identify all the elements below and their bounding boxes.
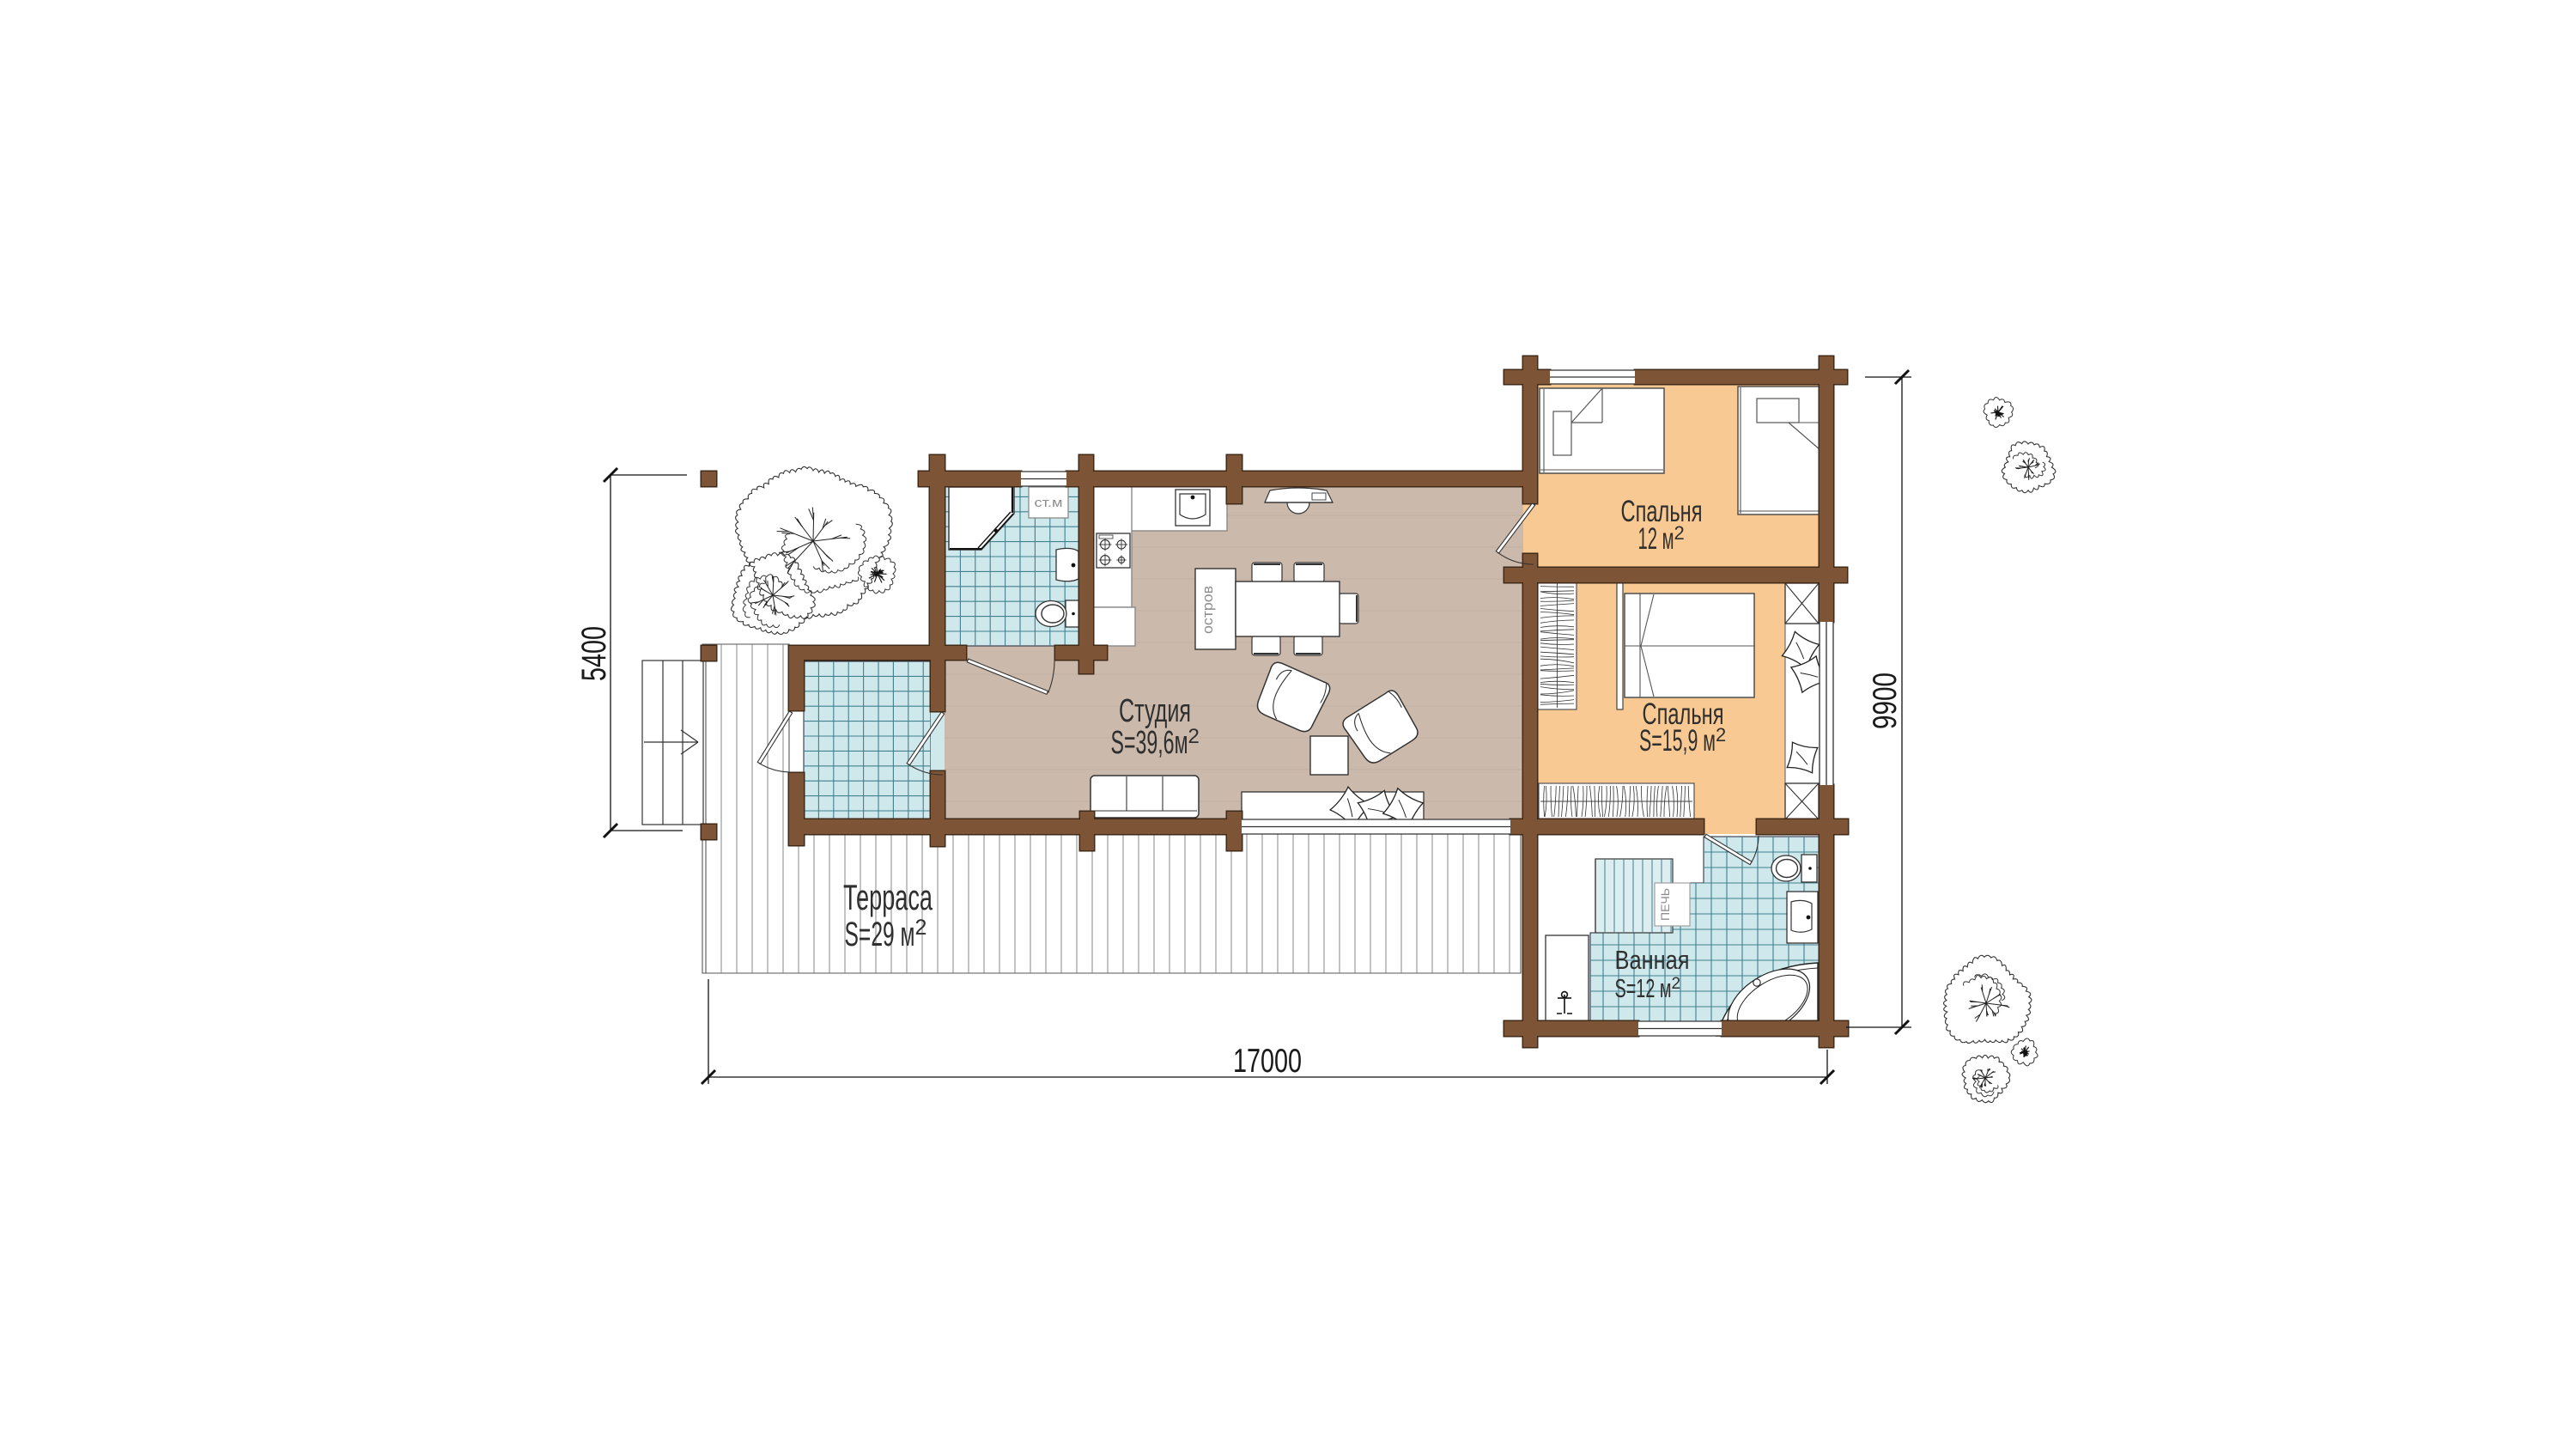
svg-text:ПЕЧЬ: ПЕЧЬ <box>1658 888 1672 921</box>
svg-text:17000: 17000 <box>1233 1043 1302 1080</box>
svg-text:9900: 9900 <box>1867 673 1904 729</box>
svg-text:S=15,9 м2: S=15,9 м2 <box>1639 724 1726 758</box>
svg-text:Терраса: Терраса <box>843 877 933 917</box>
svg-text:Ванная: Ванная <box>1615 945 1690 975</box>
svg-text:Студия: Студия <box>1119 693 1191 729</box>
svg-text:ст.м: ст.м <box>1035 496 1063 510</box>
svg-text:S=29 м2: S=29 м2 <box>845 916 927 953</box>
svg-text:5400: 5400 <box>575 626 613 681</box>
svg-text:остров: остров <box>1200 586 1216 634</box>
svg-text:S=12 м2: S=12 м2 <box>1615 973 1681 1003</box>
svg-text:S=39,6м2: S=39,6м2 <box>1111 725 1200 761</box>
